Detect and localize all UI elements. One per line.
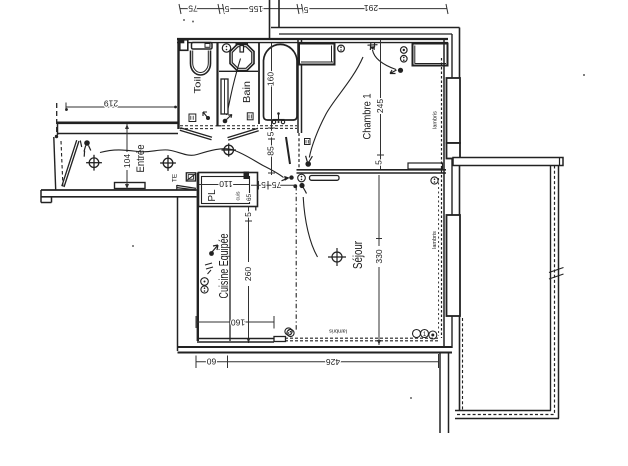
- svg-text:5: 5: [261, 180, 266, 190]
- svg-text:Séjour: Séjour: [351, 241, 365, 269]
- svg-text:291: 291: [364, 3, 378, 13]
- svg-text:5: 5: [243, 212, 253, 217]
- svg-text:104: 104: [122, 154, 132, 168]
- svg-text:lambris: lambris: [329, 328, 347, 334]
- svg-text:5: 5: [303, 5, 308, 15]
- svg-text:260: 260: [243, 267, 253, 281]
- svg-text:5: 5: [374, 160, 384, 165]
- svg-text:5: 5: [224, 4, 229, 14]
- svg-text:65: 65: [246, 194, 253, 202]
- svg-text:160: 160: [266, 72, 276, 86]
- svg-text:426: 426: [326, 357, 340, 367]
- svg-text:PL: PL: [207, 189, 218, 202]
- svg-text:75: 75: [272, 180, 282, 190]
- svg-text:TE: TE: [172, 173, 179, 182]
- svg-text:160: 160: [231, 318, 245, 328]
- svg-text:75: 75: [188, 4, 198, 14]
- svg-text:Chambre 1: Chambre 1: [362, 94, 374, 140]
- svg-text:155: 155: [249, 4, 263, 14]
- svg-text:5: 5: [266, 131, 276, 136]
- svg-text:245: 245: [375, 99, 385, 113]
- svg-text:lambris: lambris: [433, 111, 439, 129]
- svg-text:lambris: lambris: [432, 231, 438, 249]
- svg-text:330: 330: [374, 249, 384, 263]
- svg-text:110: 110: [219, 179, 233, 189]
- svg-text:Bain: Bain: [242, 81, 253, 103]
- svg-text:cuis: cuis: [236, 191, 242, 200]
- svg-text:Cuisine Equipée: Cuisine Equipée: [217, 233, 231, 298]
- svg-text:85: 85: [266, 146, 276, 156]
- svg-text:Entrée: Entrée: [135, 145, 147, 173]
- svg-text:219: 219: [104, 99, 118, 109]
- svg-text:Toil: Toil: [193, 77, 203, 94]
- svg-text:60: 60: [207, 357, 217, 367]
